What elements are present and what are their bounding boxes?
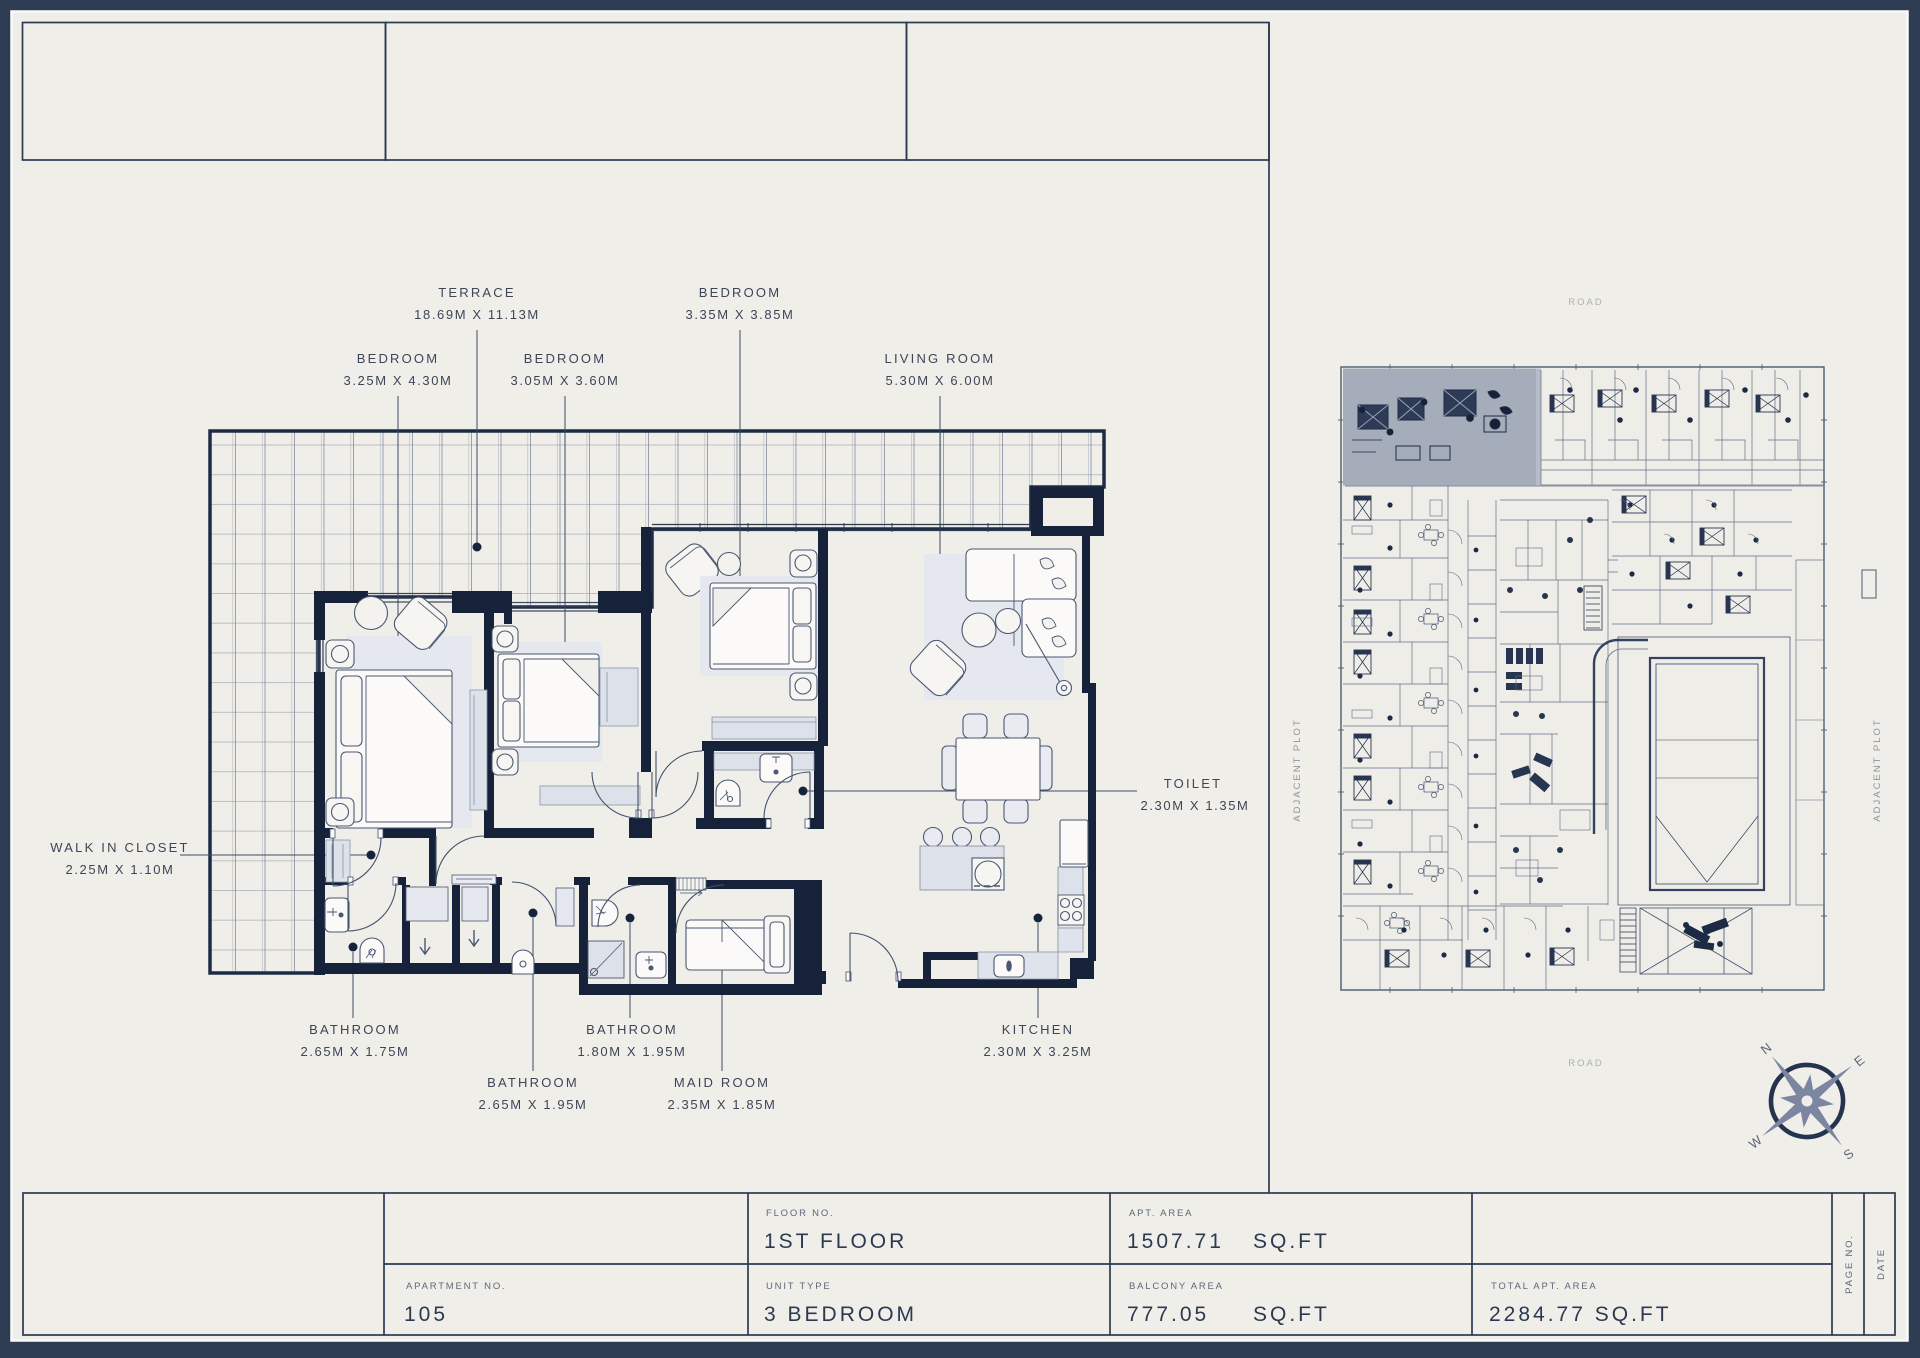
svg-text:1ST FLOOR: 1ST FLOOR	[764, 1230, 907, 1253]
svg-text:BALCONY AREA: BALCONY AREA	[1129, 1281, 1224, 1292]
svg-text:BATHROOM: BATHROOM	[586, 1022, 678, 1037]
svg-text:3.35M X 3.85M: 3.35M X 3.85M	[686, 307, 795, 322]
svg-text:2.65M X 1.75M: 2.65M X 1.75M	[301, 1044, 410, 1059]
svg-text:SQ.FT: SQ.FT	[1253, 1230, 1330, 1253]
svg-text:WALK IN CLOSET: WALK IN CLOSET	[50, 840, 189, 855]
svg-text:ROAD: ROAD	[1568, 297, 1603, 308]
svg-text:2.30M X 1.35M: 2.30M X 1.35M	[1141, 798, 1250, 813]
svg-text:ROAD: ROAD	[1568, 1058, 1603, 1069]
svg-text:BATHROOM: BATHROOM	[309, 1022, 401, 1037]
svg-text:TERRACE: TERRACE	[438, 285, 516, 300]
svg-text:2.25M X 1.10M: 2.25M X 1.10M	[66, 862, 175, 877]
svg-text:ADJACENT PLOT: ADJACENT PLOT	[1292, 718, 1303, 821]
svg-text:1.80M X 1.95M: 1.80M X 1.95M	[578, 1044, 687, 1059]
svg-text:5.30M X 6.00M: 5.30M X 6.00M	[886, 373, 995, 388]
svg-text:BEDROOM: BEDROOM	[524, 351, 607, 366]
svg-text:2.35M X 1.85M: 2.35M X 1.85M	[668, 1097, 777, 1112]
svg-text:2.30M X 3.25M: 2.30M X 3.25M	[984, 1044, 1093, 1059]
svg-text:APT. AREA: APT. AREA	[1129, 1208, 1193, 1219]
svg-text:FLOOR NO.: FLOOR NO.	[766, 1208, 834, 1219]
svg-text:105: 105	[404, 1303, 448, 1326]
svg-text:2.65M X 1.95M: 2.65M X 1.95M	[479, 1097, 588, 1112]
svg-text:KITCHEN: KITCHEN	[1002, 1022, 1074, 1037]
svg-text:DATE: DATE	[1876, 1248, 1887, 1280]
svg-text:BEDROOM: BEDROOM	[357, 351, 440, 366]
svg-text:18.69M X 11.13M: 18.69M X 11.13M	[414, 307, 540, 322]
svg-text:SQ.FT: SQ.FT	[1253, 1303, 1330, 1326]
svg-text:APARTMENT NO.: APARTMENT NO.	[406, 1281, 506, 1292]
svg-text:MAID ROOM: MAID ROOM	[674, 1075, 770, 1090]
svg-text:BEDROOM: BEDROOM	[699, 285, 782, 300]
svg-text:777.05: 777.05	[1127, 1303, 1209, 1326]
svg-text:1507.71: 1507.71	[1127, 1230, 1224, 1253]
svg-text:ADJACENT PLOT: ADJACENT PLOT	[1872, 718, 1883, 821]
svg-text:3.25M X 4.30M: 3.25M X 4.30M	[344, 373, 453, 388]
svg-text:3.05M X 3.60M: 3.05M X 3.60M	[511, 373, 620, 388]
svg-text:PAGE NO.: PAGE NO.	[1844, 1234, 1855, 1294]
svg-text:2284.77 SQ.FT: 2284.77 SQ.FT	[1489, 1303, 1672, 1326]
svg-text:UNIT TYPE: UNIT TYPE	[766, 1281, 831, 1292]
svg-text:BATHROOM: BATHROOM	[487, 1075, 579, 1090]
svg-text:TOILET: TOILET	[1164, 776, 1222, 791]
svg-text:TOTAL APT. AREA: TOTAL APT. AREA	[1491, 1281, 1598, 1292]
svg-text:3 BEDROOM: 3 BEDROOM	[764, 1303, 917, 1326]
svg-text:LIVING ROOM: LIVING ROOM	[885, 351, 996, 366]
